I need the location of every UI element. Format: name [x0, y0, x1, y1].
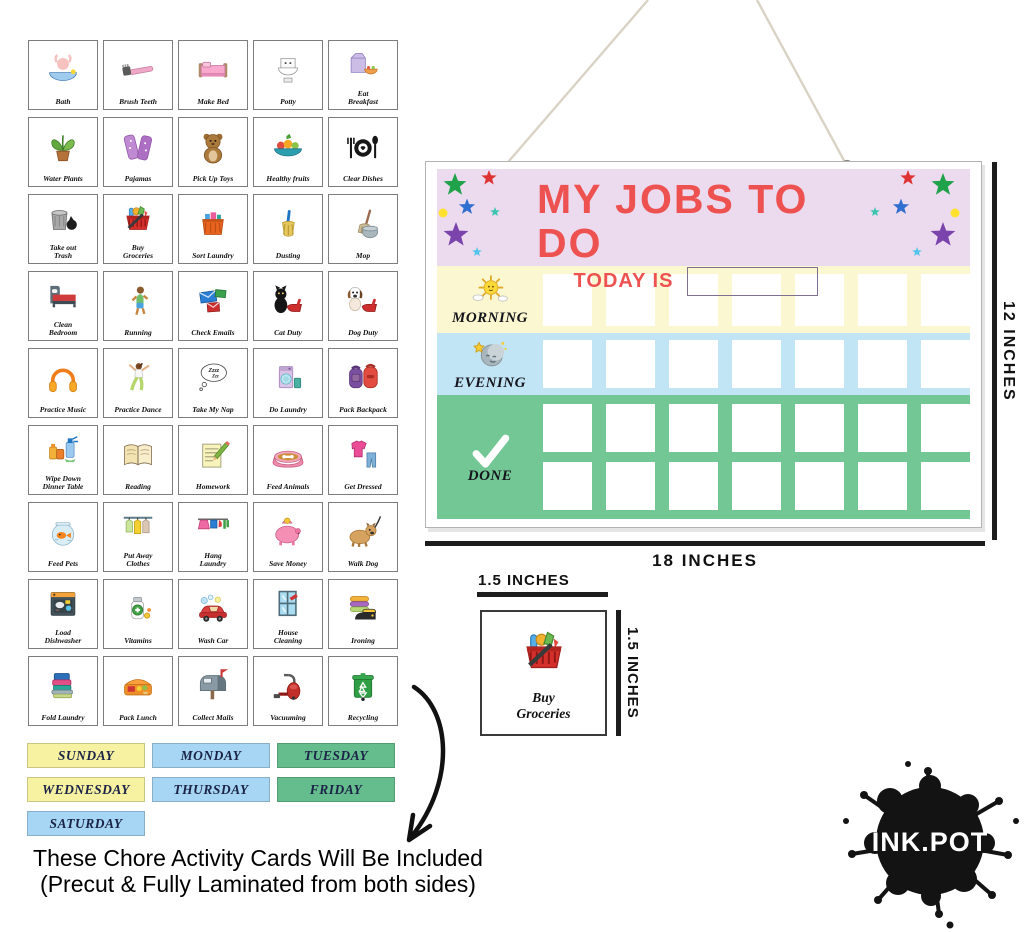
chore-card-dog-duty: Dog Duty [328, 271, 398, 341]
chore-card-label: Cat Duty [274, 329, 302, 338]
pajamas-icon [117, 129, 159, 167]
make-bed-icon [192, 52, 234, 90]
svg-text:Zzzz: Zzzz [208, 368, 220, 374]
chore-card-take-my-nap: ZzzzZzzTake My Nap [178, 348, 248, 418]
board-row-evening: EVENING [437, 333, 970, 395]
card-height-dimension-line [616, 610, 621, 736]
water-plants-icon [42, 129, 84, 167]
chore-card-label: Take out Trash [50, 244, 77, 261]
chore-card-label: Sort Laundry [192, 252, 233, 261]
star-icon [444, 173, 467, 195]
done-row-label: DONE [468, 468, 513, 485]
chore-card-label: Save Money [269, 560, 307, 569]
clean-bedroom-icon [42, 278, 84, 316]
chore-card-running: Running [103, 271, 173, 341]
evening-task-square [732, 340, 781, 388]
svg-text:Zzz: Zzz [211, 374, 219, 379]
do-laundry-icon [267, 360, 309, 398]
evening-task-square [858, 340, 907, 388]
chore-card-bath: Bath [28, 40, 98, 110]
chore-card-label: House Cleaning [274, 629, 302, 646]
vacuuming-icon [267, 668, 309, 706]
brand-logo-text: INK.POT [872, 827, 989, 857]
take-out-trash-icon [42, 201, 84, 239]
practice-dance-icon [117, 360, 159, 398]
card-height-dimension-label: 1.5 INCHES [624, 606, 641, 740]
reading-icon [117, 437, 159, 475]
today-blank-box [687, 267, 818, 296]
chore-card-label: Pick Up Toys [193, 175, 234, 184]
evening-task-square [606, 340, 655, 388]
chore-card-label: Brush Teeth [119, 98, 157, 107]
chore-card-wash-car: Wash Car [178, 579, 248, 649]
done-task-square [543, 404, 592, 452]
chore-card-wipe-down-table: Wipe Down Dinner Table [28, 425, 98, 495]
star-icon [932, 173, 955, 195]
board-header: MY JOBS TO DO TODAY IS [437, 169, 970, 266]
chore-card-label: Put Away Clothes [124, 552, 153, 569]
wash-car-icon [192, 591, 234, 629]
chore-card-label: Clear Dishes [343, 175, 383, 184]
width-dimension-line [425, 541, 985, 546]
star-icon [912, 247, 922, 256]
chore-card-label: Pajamas [125, 175, 152, 184]
star-icon [900, 170, 915, 185]
chore-card-reading: Reading [103, 425, 173, 495]
chore-card-label: Get Dressed [344, 483, 381, 492]
chore-card-label: Collect Mails [192, 714, 233, 723]
sample-card-icon-slot [512, 624, 576, 687]
chore-card-take-out-trash: Take out Trash [28, 194, 98, 264]
done-task-square [732, 404, 781, 452]
chore-card-get-dressed: Get Dressed [328, 425, 398, 495]
done-task-square [669, 404, 718, 452]
chore-card-label: Healthy fruits [266, 175, 309, 184]
board-title: MY JOBS TO DO [537, 177, 855, 265]
chore-card-sort-laundry: Sort Laundry [178, 194, 248, 264]
day-card-monday: MONDAY [152, 743, 270, 768]
cat-duty-icon [267, 283, 309, 321]
star-icon [459, 199, 475, 214]
evening-icon-slot [468, 337, 512, 375]
star-icon [931, 222, 956, 246]
chore-card-water-plants: Water Plants [28, 117, 98, 187]
sort-laundry-icon [192, 206, 234, 244]
chore-card-label: Hang Laundry [200, 552, 227, 569]
done-icon-slot [468, 430, 512, 468]
chore-card-label: Feed Pets [48, 560, 78, 569]
done-task-square [921, 462, 970, 510]
chore-card-label: Clean Bedroom [49, 321, 77, 338]
pack-backpack-icon [342, 360, 384, 398]
chore-card-collect-mails: Collect Mails [178, 656, 248, 726]
put-away-clothes-icon [117, 509, 159, 547]
chore-cards-grid: BathBrush TeethMake BedPottyEat Breakfas… [28, 40, 398, 726]
done-task-square [795, 462, 844, 510]
chore-card-label: Running [124, 329, 152, 338]
brand-logo: INK.POT [838, 758, 1023, 930]
feed-pets-icon [42, 514, 84, 552]
wipe-down-table-icon [42, 432, 84, 470]
chore-card-ironing: Ironing [328, 579, 398, 649]
chore-card-label: Dusting [276, 252, 301, 261]
chore-card-walk-dog: Walk Dog [328, 502, 398, 572]
morning-icon-slot [468, 272, 512, 310]
eat-breakfast-icon [342, 47, 384, 85]
day-card-thursday: THURSDAY [152, 777, 270, 802]
hanging-string [425, 0, 990, 182]
height-dimension-line [992, 162, 997, 540]
vitamins-icon [117, 591, 159, 629]
done-task-square [858, 404, 907, 452]
clear-dishes-icon [342, 129, 384, 167]
included-note-line2: (Precut & Fully Laminated from both side… [12, 871, 504, 897]
done-task-square [543, 462, 592, 510]
day-card-friday: FRIDAY [277, 777, 395, 802]
chore-card-label: Dog Duty [348, 329, 378, 338]
feed-animals-icon [267, 437, 309, 475]
star-icon [870, 207, 880, 216]
evening-task-square [921, 340, 970, 388]
mop-icon [342, 206, 384, 244]
dot-icon [439, 209, 448, 218]
chore-card-label: Ironing [351, 637, 375, 646]
day-card-wednesday: WEDNESDAY [27, 777, 145, 802]
chore-card-label: Do Laundry [269, 406, 307, 415]
dusting-icon [267, 206, 309, 244]
chore-card-save-money: Save Money [253, 502, 323, 572]
chore-card-cat-duty: Cat Duty [253, 271, 323, 341]
chore-chart-board: MY JOBS TO DO TODAY IS MORNINGEVENINGDON… [425, 161, 982, 528]
chore-card-label: Homework [196, 483, 230, 492]
evening-task-square [795, 340, 844, 388]
take-my-nap-icon: ZzzzZzz [192, 360, 234, 398]
chore-card-label: Vitamins [124, 637, 152, 646]
chore-card-label: Fold Laundry [41, 714, 84, 723]
chore-card-hang-laundry: Hang Laundry [178, 502, 248, 572]
decorative-stars-left [437, 169, 537, 266]
chore-card-dusting: Dusting [253, 194, 323, 264]
morning-task-square [921, 274, 970, 326]
save-money-icon [267, 514, 309, 552]
sample-card-label: Buy Groceries [517, 690, 571, 721]
day-cards-grid: SUNDAYMONDAYTUESDAYWEDNESDAYTHURSDAYFRID… [27, 743, 395, 836]
done-task-square [921, 404, 970, 452]
done-task-square [858, 462, 907, 510]
chore-card-check-emails: Check Emails [178, 271, 248, 341]
chore-card-fold-laundry: Fold Laundry [28, 656, 98, 726]
sample-chore-card: Buy Groceries [480, 610, 607, 736]
homework-icon [192, 437, 234, 475]
chore-card-load-dishwasher: Load Dishwasher [28, 579, 98, 649]
ironing-icon [342, 591, 384, 629]
evening-task-square [543, 340, 592, 388]
done-task-square [732, 462, 781, 510]
chore-card-label: Bath [55, 98, 70, 107]
chore-card-label: Wipe Down Dinner Table [43, 475, 84, 492]
practice-music-icon [42, 360, 84, 398]
buy-groceries-icon [512, 624, 576, 682]
chore-card-label: Practice Music [40, 406, 86, 415]
potty-icon [267, 52, 309, 90]
chore-card-label: Check Emails [191, 329, 234, 338]
chore-card-label: Pack Lunch [119, 714, 157, 723]
star-icon [472, 247, 482, 256]
fold-laundry-icon [42, 668, 84, 706]
chore-card-do-laundry: Do Laundry [253, 348, 323, 418]
chore-card-label: Water Plants [43, 175, 83, 184]
card-width-dimension-label: 1.5 INCHES [478, 572, 570, 589]
chore-card-label: Potty [280, 98, 296, 107]
pack-lunch-icon [117, 668, 159, 706]
get-dressed-icon [342, 437, 384, 475]
chore-card-label: Practice Dance [114, 406, 161, 415]
walk-dog-icon [342, 514, 384, 552]
collect-mails-icon [192, 668, 234, 706]
chore-card-eat-breakfast: Eat Breakfast [328, 40, 398, 110]
chore-card-house-cleaning: House Cleaning [253, 579, 323, 649]
morning-task-square [858, 274, 907, 326]
healthy-fruits-icon [267, 129, 309, 167]
pick-up-toys-icon [192, 129, 234, 167]
chore-card-homework: Homework [178, 425, 248, 495]
chore-card-vacuuming: Vacuuming [253, 656, 323, 726]
chore-card-practice-music: Practice Music [28, 348, 98, 418]
width-dimension-label: 18 INCHES [425, 551, 985, 571]
bath-icon [42, 52, 84, 90]
chore-card-put-away-clothes: Put Away Clothes [103, 502, 173, 572]
hang-laundry-icon [192, 509, 234, 547]
done-task-square [606, 462, 655, 510]
chore-card-healthy-fruits: Healthy fruits [253, 117, 323, 187]
chore-card-vitamins: Vitamins [103, 579, 173, 649]
house-cleaning-icon [267, 586, 309, 624]
board-header-center: MY JOBS TO DO TODAY IS [537, 169, 855, 266]
chore-card-label: Vacuuming [270, 714, 305, 723]
done-task-square [795, 404, 844, 452]
chore-card-brush-teeth: Brush Teeth [103, 40, 173, 110]
star-icon [893, 199, 909, 214]
star-icon [481, 170, 496, 185]
today-label: TODAY IS [574, 270, 674, 293]
recycling-icon [342, 668, 384, 706]
day-card-sunday: SUNDAY [27, 743, 145, 768]
card-width-dimension-line [477, 592, 608, 597]
chore-card-buy-groceries: Buy Groceries [103, 194, 173, 264]
day-card-saturday: SATURDAY [27, 811, 145, 836]
chore-card-pack-backpack: Pack Backpack [328, 348, 398, 418]
product-image: BathBrush TeethMake BedPottyEat Breakfas… [0, 0, 1024, 932]
done-task-square [606, 404, 655, 452]
chore-card-pick-up-toys: Pick Up Toys [178, 117, 248, 187]
height-dimension-label: 12 INCHES [999, 162, 1017, 540]
chore-card-pack-lunch: Pack Lunch [103, 656, 173, 726]
star-icon [444, 222, 469, 246]
chore-card-label: Buy Groceries [123, 244, 153, 261]
board-content: MY JOBS TO DO TODAY IS MORNINGEVENINGDON… [437, 169, 970, 519]
decorative-stars-right [855, 169, 970, 266]
evening-task-square [669, 340, 718, 388]
chore-card-label: Recycling [348, 714, 378, 723]
chore-card-feed-animals: Feed Animals [253, 425, 323, 495]
buy-groceries-icon [117, 201, 159, 239]
load-dishwasher-icon [42, 586, 84, 624]
chore-card-mop: Mop [328, 194, 398, 264]
chore-card-make-bed: Make Bed [178, 40, 248, 110]
chore-card-label: Reading [125, 483, 151, 492]
brush-teeth-icon [117, 52, 159, 90]
chore-card-label: Walk Dog [348, 560, 379, 569]
chore-card-label: Wash Car [198, 637, 229, 646]
chore-card-clear-dishes: Clear Dishes [328, 117, 398, 187]
chore-card-label: Pack Backpack [339, 406, 387, 415]
day-card-tuesday: TUESDAY [277, 743, 395, 768]
chore-card-label: Load Dishwasher [45, 629, 82, 646]
chore-card-label: Mop [356, 252, 370, 261]
dot-icon [951, 209, 960, 218]
chore-card-label: Make Bed [197, 98, 228, 107]
morning-row-label: MORNING [452, 310, 528, 327]
star-icon [490, 207, 500, 216]
evening-row-label: EVENING [454, 375, 526, 392]
chore-card-label: Feed Animals [267, 483, 310, 492]
running-icon [117, 283, 159, 321]
chore-card-practice-dance: Practice Dance [103, 348, 173, 418]
chore-card-feed-pets: Feed Pets [28, 502, 98, 572]
today-row: TODAY IS [574, 267, 819, 296]
check-emails-icon [192, 283, 234, 321]
board-row-done: DONE [437, 395, 970, 519]
chore-card-pajamas: Pajamas [103, 117, 173, 187]
curved-arrow [388, 680, 478, 855]
chore-card-label: Take My Nap [192, 406, 233, 415]
done-task-square [669, 462, 718, 510]
chore-card-label: Eat Breakfast [348, 90, 378, 107]
chore-card-potty: Potty [253, 40, 323, 110]
dog-duty-icon [342, 283, 384, 321]
board-rows: MORNINGEVENINGDONE [437, 266, 970, 519]
chore-card-clean-bedroom: Clean Bedroom [28, 271, 98, 341]
